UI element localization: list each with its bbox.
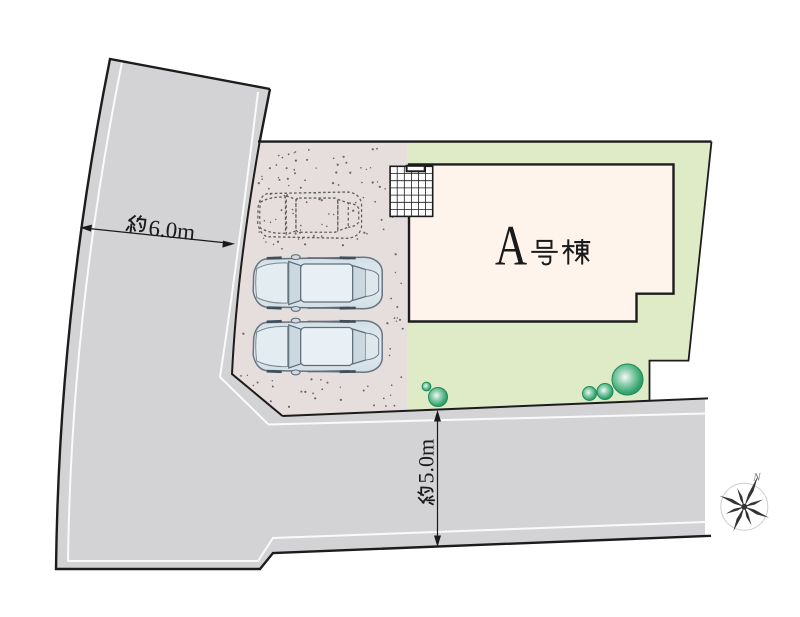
svg-text:6.0m: 6.0m [147, 215, 196, 245]
svg-text:A: A [495, 214, 527, 278]
svg-text:N: N [752, 472, 761, 484]
svg-text:5.0m: 5.0m [414, 439, 439, 484]
